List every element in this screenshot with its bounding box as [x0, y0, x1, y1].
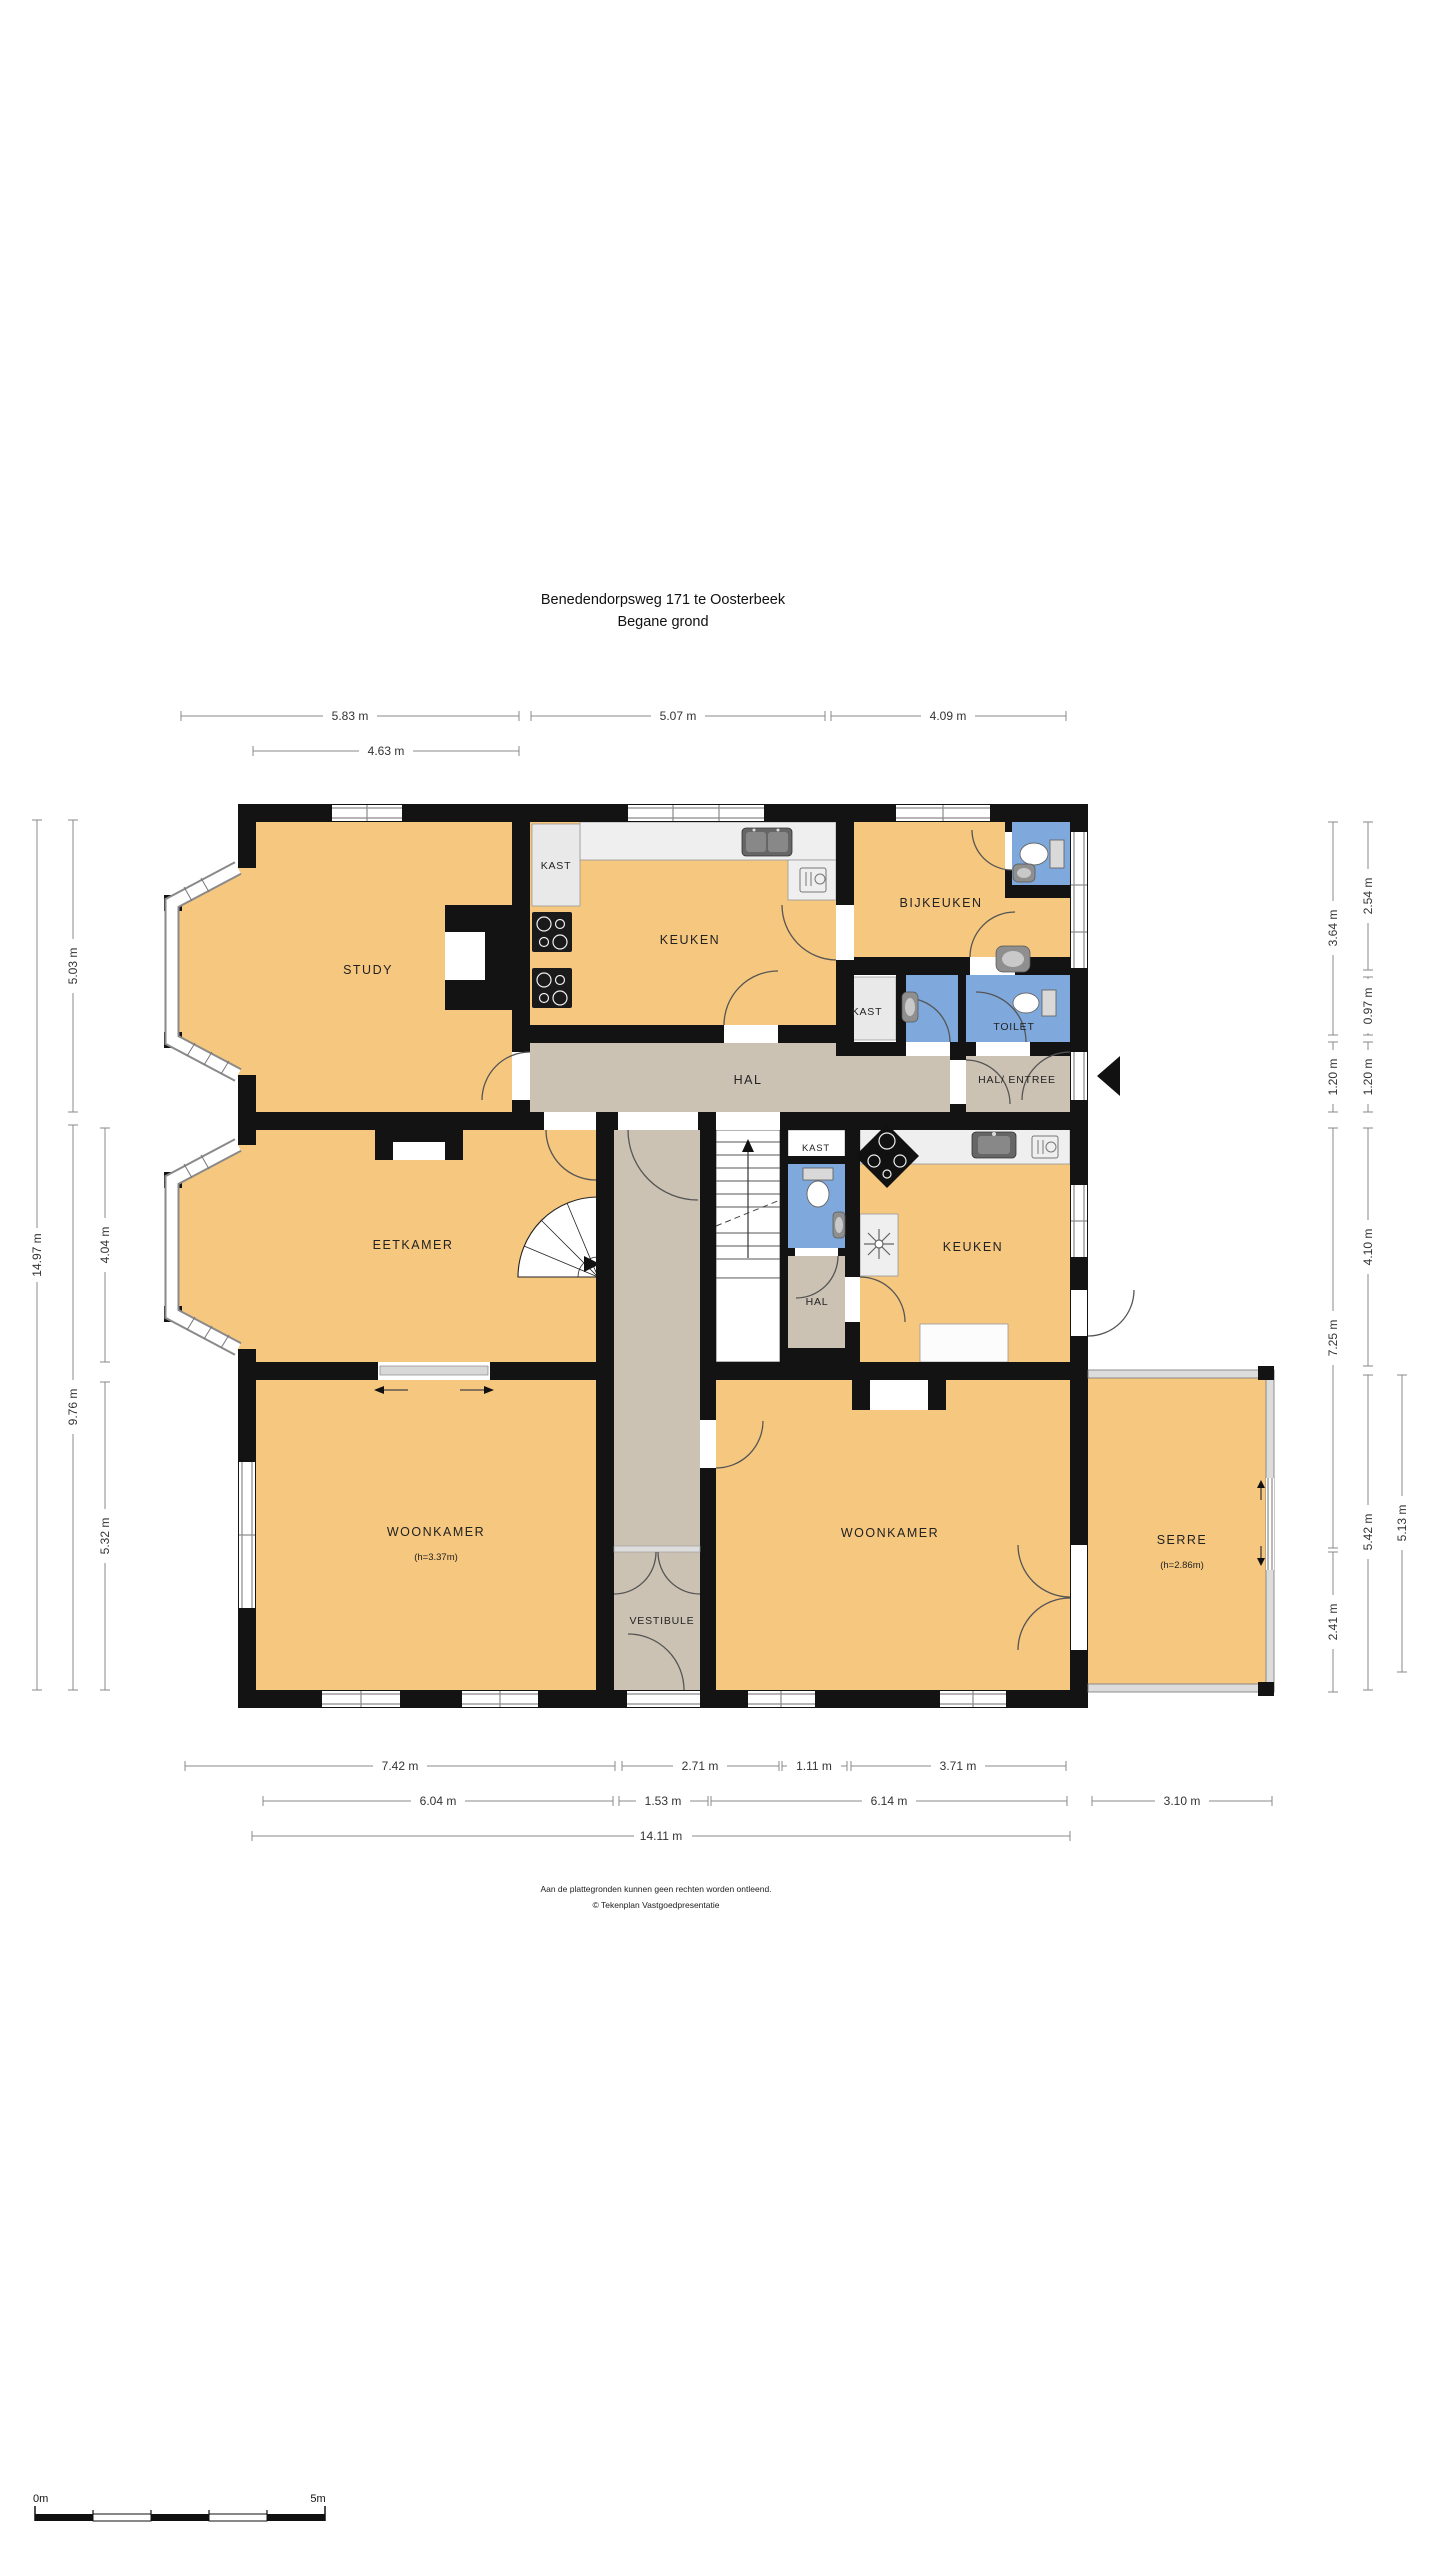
cooktop-icon — [532, 968, 572, 1008]
window-keuken2-right — [1071, 1185, 1087, 1257]
dimension-label: 3.64 m — [1326, 910, 1340, 947]
main-staircase — [716, 1130, 780, 1362]
label-vestibule: VESTIBULE — [630, 1615, 695, 1627]
label-study: STUDY — [343, 963, 393, 977]
footer: Aan de plattegronden kunnen geen rechten… — [540, 1884, 771, 1910]
washbasin-icon — [833, 1212, 845, 1238]
dimension-label: 2.41 m — [1326, 1604, 1340, 1641]
label-toilet: TOILET — [993, 1021, 1034, 1033]
entrance-arrow-icon — [1097, 1056, 1120, 1096]
dimension-label: 6.04 m — [420, 1794, 457, 1808]
window-serre-door — [1266, 1478, 1274, 1570]
double-sink-icon — [742, 828, 792, 856]
kitchen2-table — [920, 1324, 1008, 1362]
cooktop-icon — [532, 912, 572, 952]
scale-end-label: 5m — [310, 2493, 325, 2505]
window-bijkeuken-right — [1071, 832, 1087, 968]
dimension-label: 7.42 m — [382, 1759, 419, 1773]
label-hal-small: HAL — [806, 1296, 829, 1308]
label-eetkamer: EETKAMER — [373, 1238, 454, 1252]
dimension-label: 0.97 m — [1361, 988, 1375, 1025]
room-corridor-vestibule — [614, 1130, 700, 1690]
label-woonkamer-left: WOONKAMER — [387, 1525, 485, 1539]
dimension-label: 3.10 m — [1164, 1794, 1201, 1808]
dimension-label: 3.71 m — [940, 1759, 977, 1773]
window-study-top — [332, 805, 402, 821]
window-woonkamer-right-bottom-1 — [748, 1691, 815, 1707]
dimension-label: 5.13 m — [1395, 1505, 1409, 1542]
window-keuken-top — [628, 805, 764, 821]
dimension-label: 1.11 m — [796, 1759, 832, 1773]
dimension-label: 5.07 m — [660, 709, 697, 723]
label-woonkamer-left-height: (h=3.37m) — [414, 1552, 458, 1563]
serre-wall-top — [1088, 1370, 1274, 1378]
dimension-label: 4.04 m — [98, 1227, 112, 1264]
window-bijkeuken-top — [896, 805, 990, 821]
window-woonkamer-right-bottom-2 — [940, 1691, 1006, 1707]
dimension-label: 1.20 m — [1361, 1059, 1375, 1096]
title-address: Benedendorpsweg 171 te Oosterbeek — [541, 592, 786, 608]
dimension-label: 5.42 m — [1361, 1514, 1375, 1551]
scale-bar: 0m 5m — [33, 2493, 326, 2521]
dimension-label: 2.71 m — [682, 1759, 719, 1773]
room-hal — [530, 1043, 836, 1112]
label-kast-right: KAST — [852, 1006, 883, 1018]
footer-disclaimer: Aan de plattegronden kunnen geen rechten… — [540, 1884, 771, 1894]
dimension-label: 4.10 m — [1361, 1229, 1375, 1266]
label-bijkeuken: BIJKEUKEN — [900, 896, 983, 910]
sink-icon — [972, 1132, 1016, 1158]
dimension-label: 5.83 m — [332, 709, 369, 723]
window-woonkamer-left-bottom-1 — [322, 1691, 400, 1707]
window-woonkamer-left-side — [239, 1462, 255, 1608]
vestibule-double-door-sill — [614, 1546, 700, 1552]
dimension-label: 14.97 m — [30, 1233, 44, 1276]
room-hal-right — [836, 1056, 950, 1112]
dimension-label: 14.11 m — [640, 1829, 682, 1843]
dimension-label: 1.20 m — [1326, 1059, 1340, 1096]
label-keuken-mid: KEUKEN — [943, 1240, 1003, 1254]
label-keuken-top: KEUKEN — [660, 933, 720, 947]
scale-start-label: 0m — [33, 2493, 48, 2505]
serre-wall-bottom — [1088, 1684, 1274, 1692]
dimension-label: 1.53 m — [645, 1794, 682, 1808]
washbasin-icon — [996, 946, 1030, 972]
dimension-label: 5.32 m — [98, 1518, 112, 1555]
label-hal: HAL — [734, 1073, 763, 1087]
label-serre-height: (h=2.86m) — [1160, 1560, 1204, 1571]
label-kast-top: KAST — [541, 860, 572, 872]
floorplan-drawing: Benedendorpsweg 171 te Oosterbeek Begane… — [0, 0, 1440, 2560]
title-floor: Begane grond — [617, 614, 708, 630]
dimension-label: 7.25 m — [1326, 1320, 1340, 1357]
dimension-label: 9.76 m — [66, 1389, 80, 1426]
fan-icon — [864, 1229, 894, 1259]
washbasin-icon — [1013, 864, 1035, 882]
label-serre: SERRE — [1157, 1533, 1208, 1547]
label-woonkamer-right: WOONKAMER — [841, 1526, 939, 1540]
floorplan-page: Benedendorpsweg 171 te Oosterbeek Begane… — [0, 0, 1440, 2560]
label-kast-mid: KAST — [802, 1143, 830, 1154]
dimension-label: 4.09 m — [930, 709, 967, 723]
dimension-label: 4.63 m — [368, 744, 405, 758]
kitchen-counter-return — [788, 860, 836, 900]
label-hal-entree: HAL/ ENTREE — [978, 1074, 1056, 1086]
room-serre — [1088, 1378, 1266, 1684]
washbasin-icon — [902, 992, 918, 1022]
dimension-label: 2.54 m — [1361, 878, 1375, 915]
dimension-label: 6.14 m — [871, 1794, 908, 1808]
page-title: Benedendorpsweg 171 te Oosterbeek Begane… — [541, 592, 786, 630]
window-woonkamer-left-bottom-2 — [462, 1691, 538, 1707]
footer-copyright: © Tekenplan Vastgoedpresentatie — [593, 1900, 720, 1910]
kitchen-counter-top — [580, 822, 836, 860]
dimension-label: 5.03 m — [66, 948, 80, 985]
